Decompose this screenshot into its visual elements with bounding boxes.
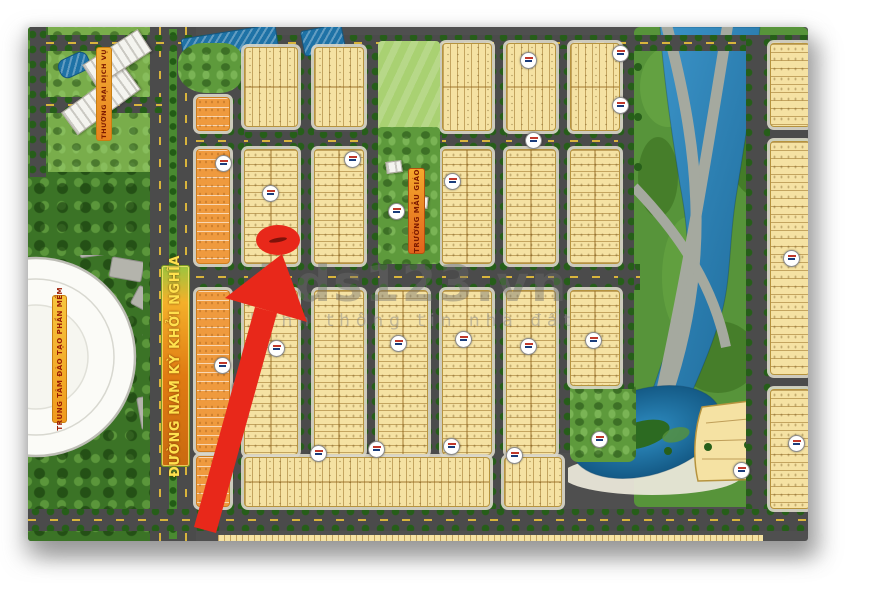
lot-info-badge (520, 52, 537, 69)
lot-block (442, 149, 492, 264)
street (298, 49, 314, 509)
lawn-field (378, 41, 440, 131)
park-patch (570, 382, 636, 462)
lot-info-badge (344, 151, 361, 168)
lot-block (442, 290, 492, 455)
side-road (770, 375, 808, 387)
lot-info-badge (214, 357, 231, 374)
commercial-area-label-text: THƯƠNG MẠI DỊCH VỤ (100, 49, 108, 139)
street (228, 49, 244, 509)
lot-info-badge (733, 462, 750, 479)
lot-info-badge (585, 332, 602, 349)
lot-info-badge (268, 340, 285, 357)
lot-block (770, 43, 808, 127)
lot-info-badge (390, 335, 407, 352)
street (554, 49, 570, 453)
lot-info-badge (783, 250, 800, 267)
training-center-label: TRUNG TÂM ĐÀO TẠO PHẦN MỀM (52, 295, 67, 423)
kindergarten-label: TRƯỜNG MẪU GIÁO (408, 168, 425, 254)
school-building (385, 160, 403, 174)
lot-info-badge (612, 45, 629, 62)
lot-block (442, 43, 492, 131)
main-road-label: ĐƯỜNG NAM KỲ KHỞI NGHĨA (161, 265, 190, 467)
lot-info-badge (388, 203, 405, 220)
lot-info-badge (444, 173, 461, 190)
lot-block (244, 290, 298, 455)
kindergarten-label-text: TRƯỜNG MẪU GIÁO (413, 169, 421, 253)
central-road (196, 264, 640, 290)
lot-block (244, 457, 490, 507)
master-plan-map: ĐƯỜNG NAM KỲ KHỞI NGHĨA THƯƠNG MẠI DỊCH … (28, 27, 808, 541)
lot-info-badge (591, 431, 608, 448)
commercial-area-label: THƯƠNG MẠI DỊCH VỤ (96, 47, 112, 141)
lot-info-badge (443, 438, 460, 455)
junction-green (178, 43, 242, 93)
orange-lot-block (196, 97, 230, 131)
lot-info-badge (520, 338, 537, 355)
lot-block (506, 290, 556, 455)
lot-info-badge (310, 445, 327, 462)
edge-street (30, 27, 46, 177)
lot-block (570, 149, 620, 264)
lot-block (506, 149, 556, 264)
lot-block (378, 290, 428, 455)
lot-block (314, 47, 364, 127)
training-center-circle (28, 255, 143, 470)
riverside-street (746, 35, 770, 509)
lot-block (314, 290, 364, 455)
lot-block (244, 47, 298, 127)
lot-info-badge (232, 379, 249, 396)
lot-info-badge (525, 132, 542, 149)
lot-info-badge (262, 185, 279, 202)
bottom-road (28, 509, 808, 531)
street (362, 49, 378, 509)
training-center-label-text: TRUNG TÂM ĐÀO TẠO PHẦN MỀM (56, 287, 64, 431)
lot-info-badge (455, 331, 472, 348)
lot-info-badge (506, 447, 523, 464)
lot-info-badge (215, 155, 232, 172)
lot-info-badge (612, 97, 629, 114)
lot-info-badge (368, 441, 385, 458)
orange-lot-block (196, 456, 230, 507)
lot-info-badge (788, 435, 805, 452)
lot-block (244, 149, 298, 264)
street (490, 49, 506, 509)
main-road-label-text: ĐƯỜNG NAM KỲ KHỞI NGHĨA (168, 255, 183, 477)
side-road (770, 127, 808, 139)
lot-block-edge (218, 535, 763, 541)
screenshot-page: ĐƯỜNG NAM KỲ KHỞI NGHĨA THƯƠNG MẠI DỊCH … (0, 0, 871, 605)
lot-block (504, 457, 562, 507)
